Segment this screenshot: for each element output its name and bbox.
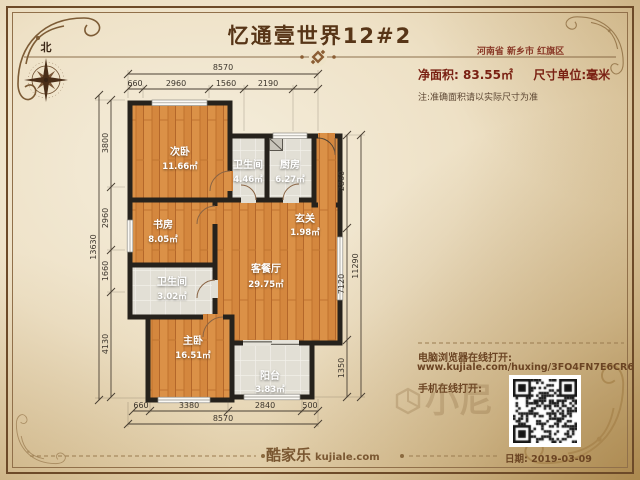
region-label: 河南省 新乡市 红旗区 — [418, 44, 623, 57]
unit-label: 尺寸单位:毫米 — [533, 68, 610, 82]
floorplan-page: { "header": { "title": "忆通壹世界12#2", "reg… — [0, 0, 640, 480]
qr-code — [513, 379, 577, 443]
kujiale-logo: 酷家乐 kujiale.com — [266, 444, 380, 465]
logo-text: 酷家乐 — [266, 444, 311, 465]
mobile-open-label: 手机在线打开: — [418, 380, 482, 395]
logo-domain: kujiale.com — [315, 452, 380, 463]
qr-code-box — [509, 375, 581, 447]
area-note: 注:准确面积请以实际尺寸为准 — [418, 90, 630, 103]
net-area-value: 83.55㎡ — [463, 68, 513, 82]
share-url: www.kujiale.com/huxing/3FO4FN7E6CR6 — [417, 362, 631, 373]
net-area-label: 净面积: — [418, 68, 459, 82]
net-area-line: 净面积: 83.55㎡ 尺寸单位:毫米 — [418, 66, 630, 83]
date-label: 日期: 2019-03-09 — [505, 451, 625, 465]
